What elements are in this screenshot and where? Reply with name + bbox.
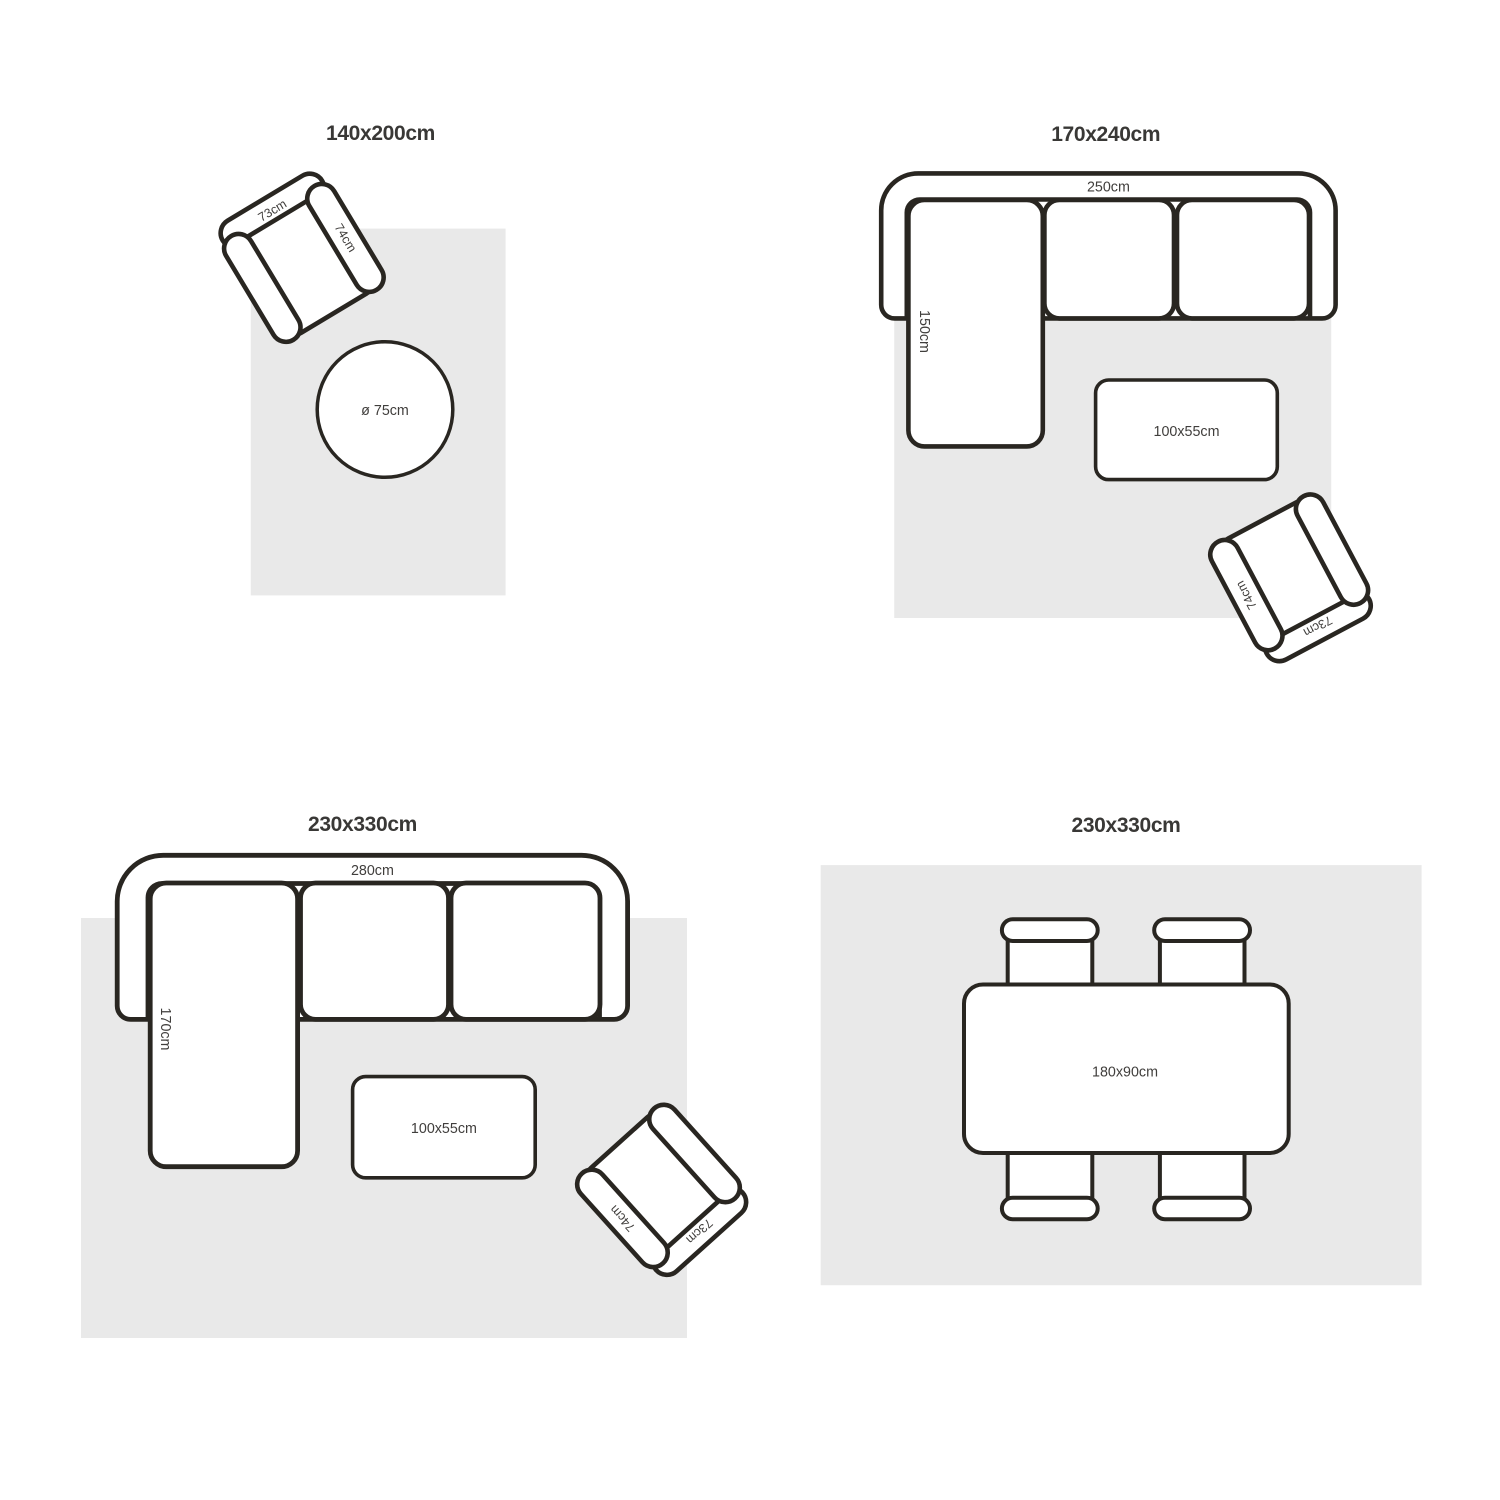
- svg-text:170cm: 170cm: [157, 1008, 173, 1051]
- svg-text:ø 75cm: ø 75cm: [361, 403, 409, 419]
- svg-text:280cm: 280cm: [351, 863, 394, 879]
- svg-text:170x240cm: 170x240cm: [1051, 123, 1160, 146]
- svg-text:150cm: 150cm: [916, 310, 932, 353]
- svg-text:100x55cm: 100x55cm: [1154, 424, 1220, 440]
- svg-text:100x55cm: 100x55cm: [411, 1121, 477, 1137]
- svg-text:180x90cm: 180x90cm: [1092, 1064, 1158, 1080]
- svg-text:230x330cm: 230x330cm: [308, 813, 417, 836]
- svg-text:230x330cm: 230x330cm: [1072, 814, 1181, 837]
- svg-text:250cm: 250cm: [1087, 180, 1130, 196]
- svg-text:140x200cm: 140x200cm: [326, 122, 435, 145]
